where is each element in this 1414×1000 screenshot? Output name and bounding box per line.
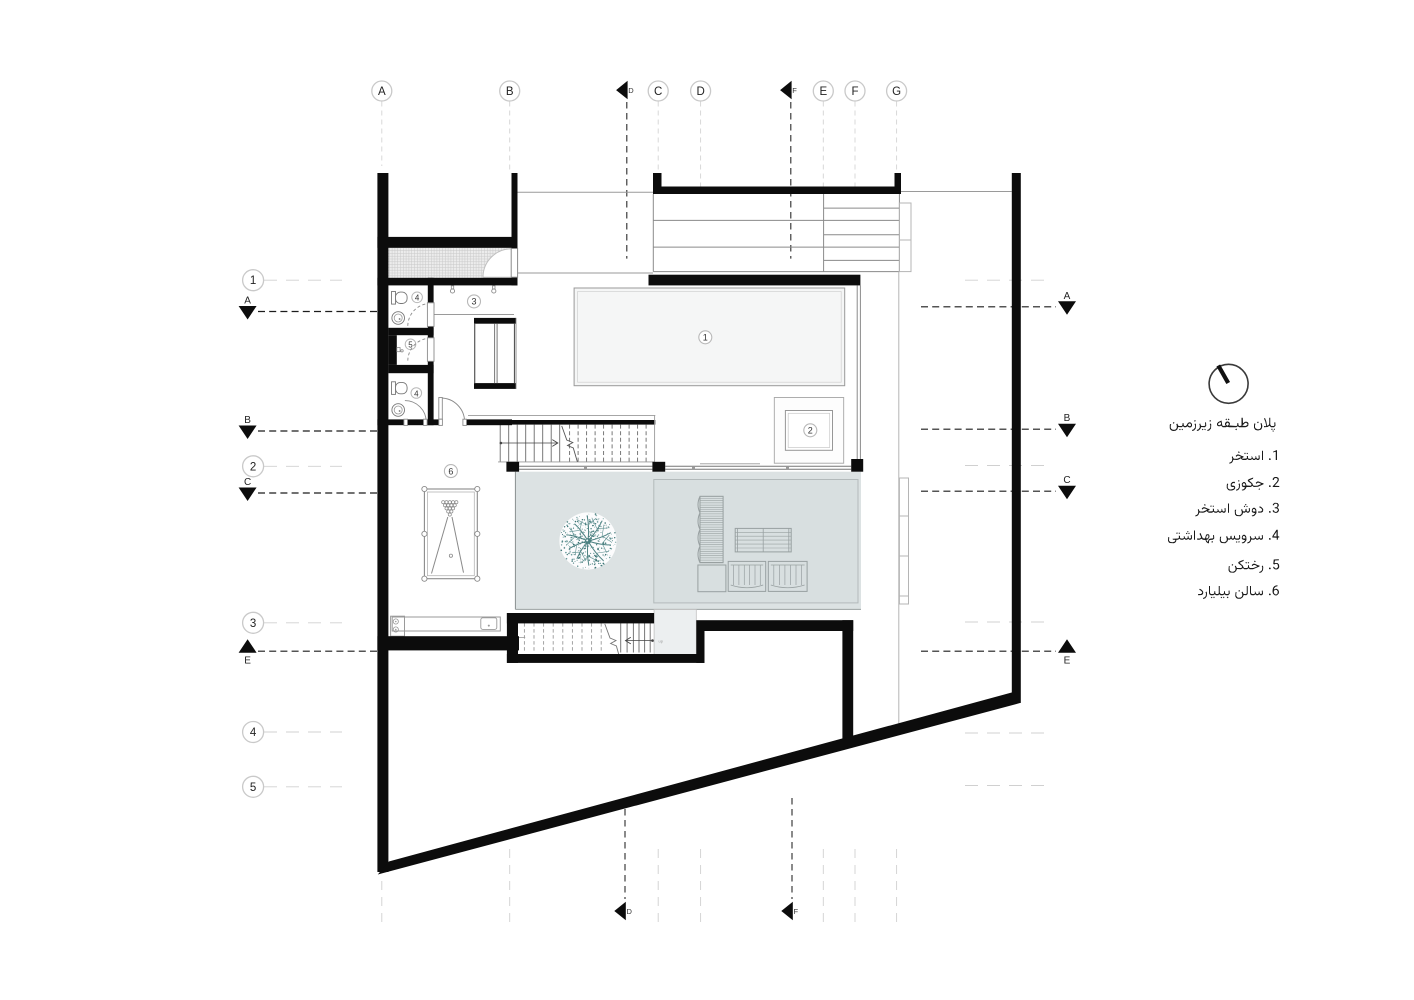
svg-text:D: D [628, 86, 634, 95]
svg-text:C: C [654, 86, 662, 98]
svg-text:C: C [1063, 475, 1070, 486]
svg-text:E: E [819, 86, 827, 98]
svg-text:C: C [244, 477, 251, 488]
svg-text:5: 5 [408, 341, 413, 350]
svg-text:D: D [627, 907, 633, 916]
svg-text:4: 4 [415, 294, 420, 303]
svg-text:2: 2 [808, 426, 813, 436]
svg-text:4: 4 [414, 389, 419, 398]
svg-text:6: 6 [448, 467, 453, 477]
svg-text:G: G [892, 86, 901, 98]
svg-text:B: B [1064, 413, 1071, 424]
svg-text:1: 1 [250, 275, 256, 287]
svg-text:D: D [696, 86, 704, 98]
svg-text:5: 5 [250, 782, 256, 794]
svg-text:B: B [244, 415, 251, 426]
svg-text:E: E [1064, 656, 1071, 667]
svg-text:3: 3 [471, 297, 476, 307]
svg-text:3: 3 [250, 618, 256, 630]
svg-text:up: up [659, 638, 664, 643]
svg-text:F: F [851, 86, 858, 98]
svg-text:F: F [792, 86, 797, 95]
svg-text:A: A [378, 86, 386, 98]
svg-text:1: 1 [703, 333, 708, 343]
svg-text:F: F [794, 907, 799, 916]
svg-text:A: A [244, 296, 251, 307]
svg-text:A: A [1064, 291, 1071, 302]
svg-text:2: 2 [250, 461, 256, 473]
svg-text:B: B [506, 86, 514, 98]
svg-text:E: E [244, 656, 251, 667]
svg-text:4: 4 [250, 727, 257, 739]
